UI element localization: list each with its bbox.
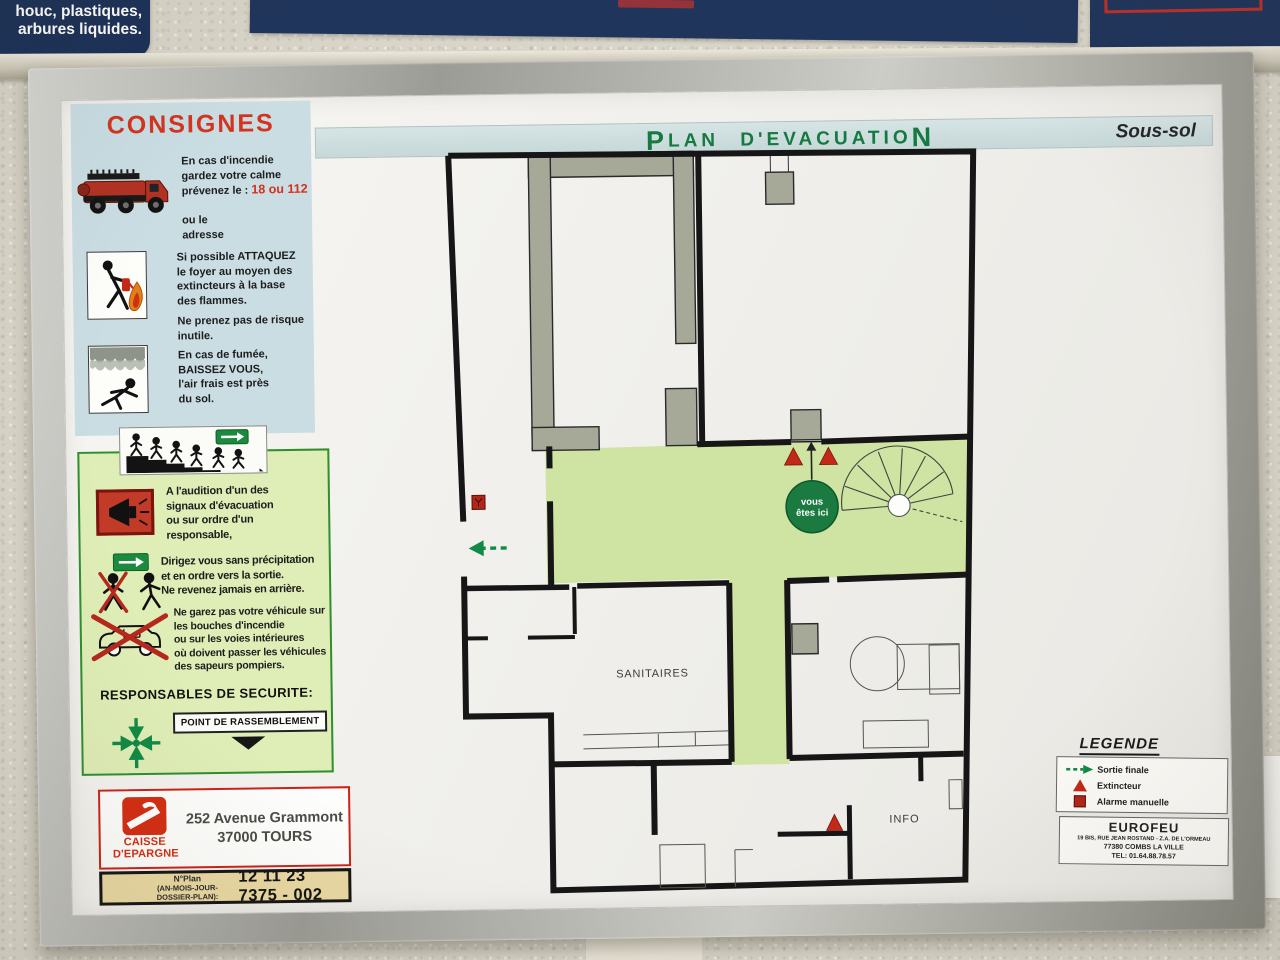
evacuation-board: PLAN D'EVACUATION Sous-sol CONSIGNES [60, 84, 1233, 916]
svg-text:êtes ici: êtes ici [796, 507, 828, 518]
legend-item: Extincteur [1063, 777, 1221, 795]
exit-arrow-badge [113, 553, 149, 572]
legend-item: Alarme manuelle [1063, 793, 1221, 811]
extinguisher-triangle [826, 814, 842, 830]
legend-title: LEGENDE [1079, 735, 1159, 756]
direct-exit-text: Dirigez vous sans précipitation et en or… [161, 553, 315, 599]
smoke-text: En cas de fumée, BAISSEZ VOUS, l'air fra… [178, 347, 313, 407]
small-red-text-strip [618, 0, 694, 8]
no-risk-text: Ne prenez pas de risque inutile. [177, 313, 311, 344]
brand-name: CAISSE [113, 836, 177, 849]
grey-column [791, 410, 821, 440]
legend-box: Sortie finale Extincteur Alarme manuelle [1056, 756, 1229, 814]
legend-item: Sortie finale [1063, 761, 1221, 779]
floor-label: Sous-sol [1116, 120, 1197, 143]
wall-sign-top-left: er, carton, chiffons, houc, plastiques, … [0, 0, 150, 57]
consignes-title: CONSIGNES [71, 109, 311, 141]
site-address: 252 Avenue Grammont 37000 TOURS [180, 808, 349, 848]
plan-number-labels: N°Plan (AN-MOIS-JOUR-DOSSIER-PLAN): [144, 873, 230, 902]
no-parking-car-icon [88, 611, 173, 664]
responsables-heading: RESPONSABLES DE SECURITE: [83, 684, 331, 702]
no-parking-text: Ne garez pas votre véhicule sur les bouc… [173, 605, 326, 675]
room-label-sanitaires: SANITAIRES [616, 667, 689, 680]
wall-poster-top-right [1090, 0, 1280, 50]
plan-number-value: 12 11 23 7375 - 002 [238, 866, 348, 906]
final-exit-arrow-icon [1063, 764, 1097, 774]
room-label-info: INFO [889, 813, 919, 825]
assembly-point-icon [109, 715, 164, 772]
alarm-signal-text: A l'audition d'un des signaux d'évacuati… [166, 483, 274, 542]
walking-people-icon [93, 571, 170, 614]
duct-lines [770, 154, 788, 172]
manual-alarm-icon [1063, 795, 1097, 807]
fire-truck-icon [77, 158, 180, 223]
down-arrow [231, 736, 265, 749]
poster-red-border [1103, 0, 1262, 13]
wall-poster-top-center [250, 0, 1079, 43]
extinguish-fire-icon [86, 251, 147, 320]
fire-instruction-text: En cas d'incendie gardez votre calme pré… [181, 153, 310, 243]
duct-column [765, 172, 793, 204]
attack-fire-text: Si possible ATTAQUEZ le foyer au moyen d… [176, 249, 311, 309]
evacuate-stairs-badge [119, 425, 268, 475]
owner-box: CAISSE D'EPARGNE 252 Avenue Grammont 370… [98, 786, 351, 870]
caisse-epargne-logo-block: CAISSE D'EPARGNE [112, 795, 177, 861]
manufacturer-phone: TEL: 01.64.88.78.57 [1060, 851, 1228, 862]
evacuation-corridor [545, 437, 975, 767]
smoke-crouch-icon [88, 345, 149, 414]
consignes-panel: CONSIGNES En cas d'incendie gardez votre… [70, 101, 315, 436]
manual-alarm-marker [472, 495, 485, 509]
floor-plan: vous êtes ici SANITAIRES INFO [425, 131, 996, 899]
brand-name: D'EPARGNE [113, 848, 177, 861]
photo-of-evacuation-plan: er, carton, chiffons, houc, plastiques, … [0, 0, 1280, 960]
wall-sign-line: houc, plastiques, [0, 3, 142, 22]
round-table [850, 636, 905, 691]
svg-text:vous: vous [801, 497, 823, 508]
assembly-point-label: POINT DE RASSEMBLEMENT [173, 710, 327, 733]
alarm-megaphone-icon [96, 489, 155, 536]
emergency-phone: 18 ou 112 [251, 182, 307, 197]
wall-sign-line: arbures liquides. [0, 21, 142, 40]
plan-number-box: N°Plan (AN-MOIS-JOUR-DOSSIER-PLAN): 12 1… [99, 868, 351, 906]
final-exit-arrow [469, 540, 507, 557]
manufacturer-box: EUROFEU 19 BIS, RUE JEAN ROSTAND - Z.A. … [1059, 816, 1230, 866]
extinguisher-icon [1063, 779, 1097, 791]
evacuation-panel: A l'audition d'un des signaux d'évacuati… [77, 448, 333, 775]
grey-column [792, 624, 818, 654]
evacuation-board-frame: PLAN D'EVACUATION Sous-sol CONSIGNES [28, 51, 1266, 946]
caisse-epargne-logo [122, 797, 167, 836]
